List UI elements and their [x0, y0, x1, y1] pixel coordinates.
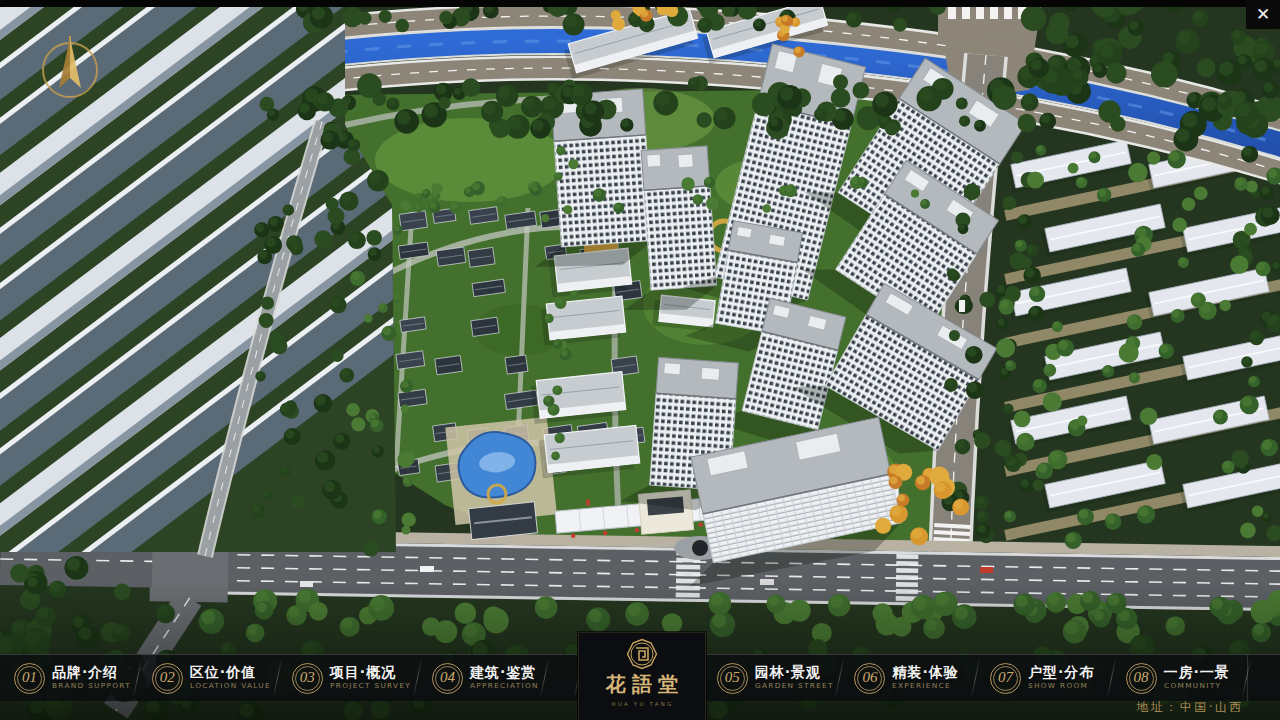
nav-label-zh: 园林·景观	[755, 665, 841, 680]
nav-label-zh: 项目·概况	[330, 665, 418, 680]
number-badge: 06	[854, 663, 885, 694]
number-badge: 04	[432, 663, 463, 694]
nav-label-en: LOCATION VALUE	[190, 683, 271, 691]
nav-item-project[interactable]: 03 项目·概况PROJECT SURVEY	[278, 655, 418, 701]
project-logo[interactable]: 花語堂 HUA YU TANG	[578, 632, 706, 720]
nav-label-zh: 精装·体验	[892, 665, 958, 680]
nav-item-interior[interactable]: 06 精装·体验EXPERIENCE	[840, 655, 976, 701]
nav-label-en: COMMUNITY	[1164, 683, 1225, 691]
nav-spacer	[1247, 655, 1280, 701]
nav-label-en: EXPERIENCE	[892, 683, 953, 691]
close-button[interactable]: ✕	[1246, 0, 1280, 29]
address-text: 地址：中国·山西	[1136, 699, 1244, 716]
number-badge: 03	[292, 663, 323, 694]
logo-subtitle: HUA YU TANG	[611, 700, 673, 706]
compass-north-icon	[28, 26, 112, 110]
nav-item-brand[interactable]: 01 品牌·介绍BRAND SUPPORT	[0, 655, 138, 701]
nav-label-zh: 一房·一景	[1164, 665, 1230, 680]
nav-spacer	[470, 655, 579, 701]
nav-label-zh: 户型·分布	[1028, 665, 1094, 680]
number-badge: 07	[990, 663, 1021, 694]
seal-icon	[626, 638, 658, 670]
masterplan-render	[0, 0, 1280, 720]
number-badge: 05	[717, 663, 748, 694]
nav-label-zh: 品牌·介绍	[52, 665, 138, 680]
nav-label-zh: 区位·价值	[190, 665, 278, 680]
nav-label-en: GARDEN STREET	[755, 683, 834, 691]
nav-label-en: BRAND SUPPORT	[52, 683, 131, 691]
nav-item-location[interactable]: 02 区位·价值LOCATION VALUE	[138, 655, 278, 701]
nav-label-en: PROJECT SURVEY	[330, 683, 411, 691]
nav-label-en: SHOW ROOM	[1028, 683, 1089, 691]
nav-item-floorplan[interactable]: 07 户型·分布SHOW ROOM	[976, 655, 1112, 701]
app-window: ✕ 01 品牌·介绍BRAND SUPPORT 02 区位·价值LOCATION…	[0, 0, 1280, 720]
nav-item-view[interactable]: 08 一房·一景COMMUNITY	[1112, 655, 1248, 701]
number-badge: 02	[152, 663, 183, 694]
number-badge: 01	[14, 663, 45, 694]
nav-item-garden[interactable]: 05 园林·景观GARDEN STREET	[703, 655, 841, 701]
top-black-strip	[0, 0, 1280, 7]
logo-title: 花語堂	[600, 671, 684, 698]
number-badge: 08	[1126, 663, 1157, 694]
